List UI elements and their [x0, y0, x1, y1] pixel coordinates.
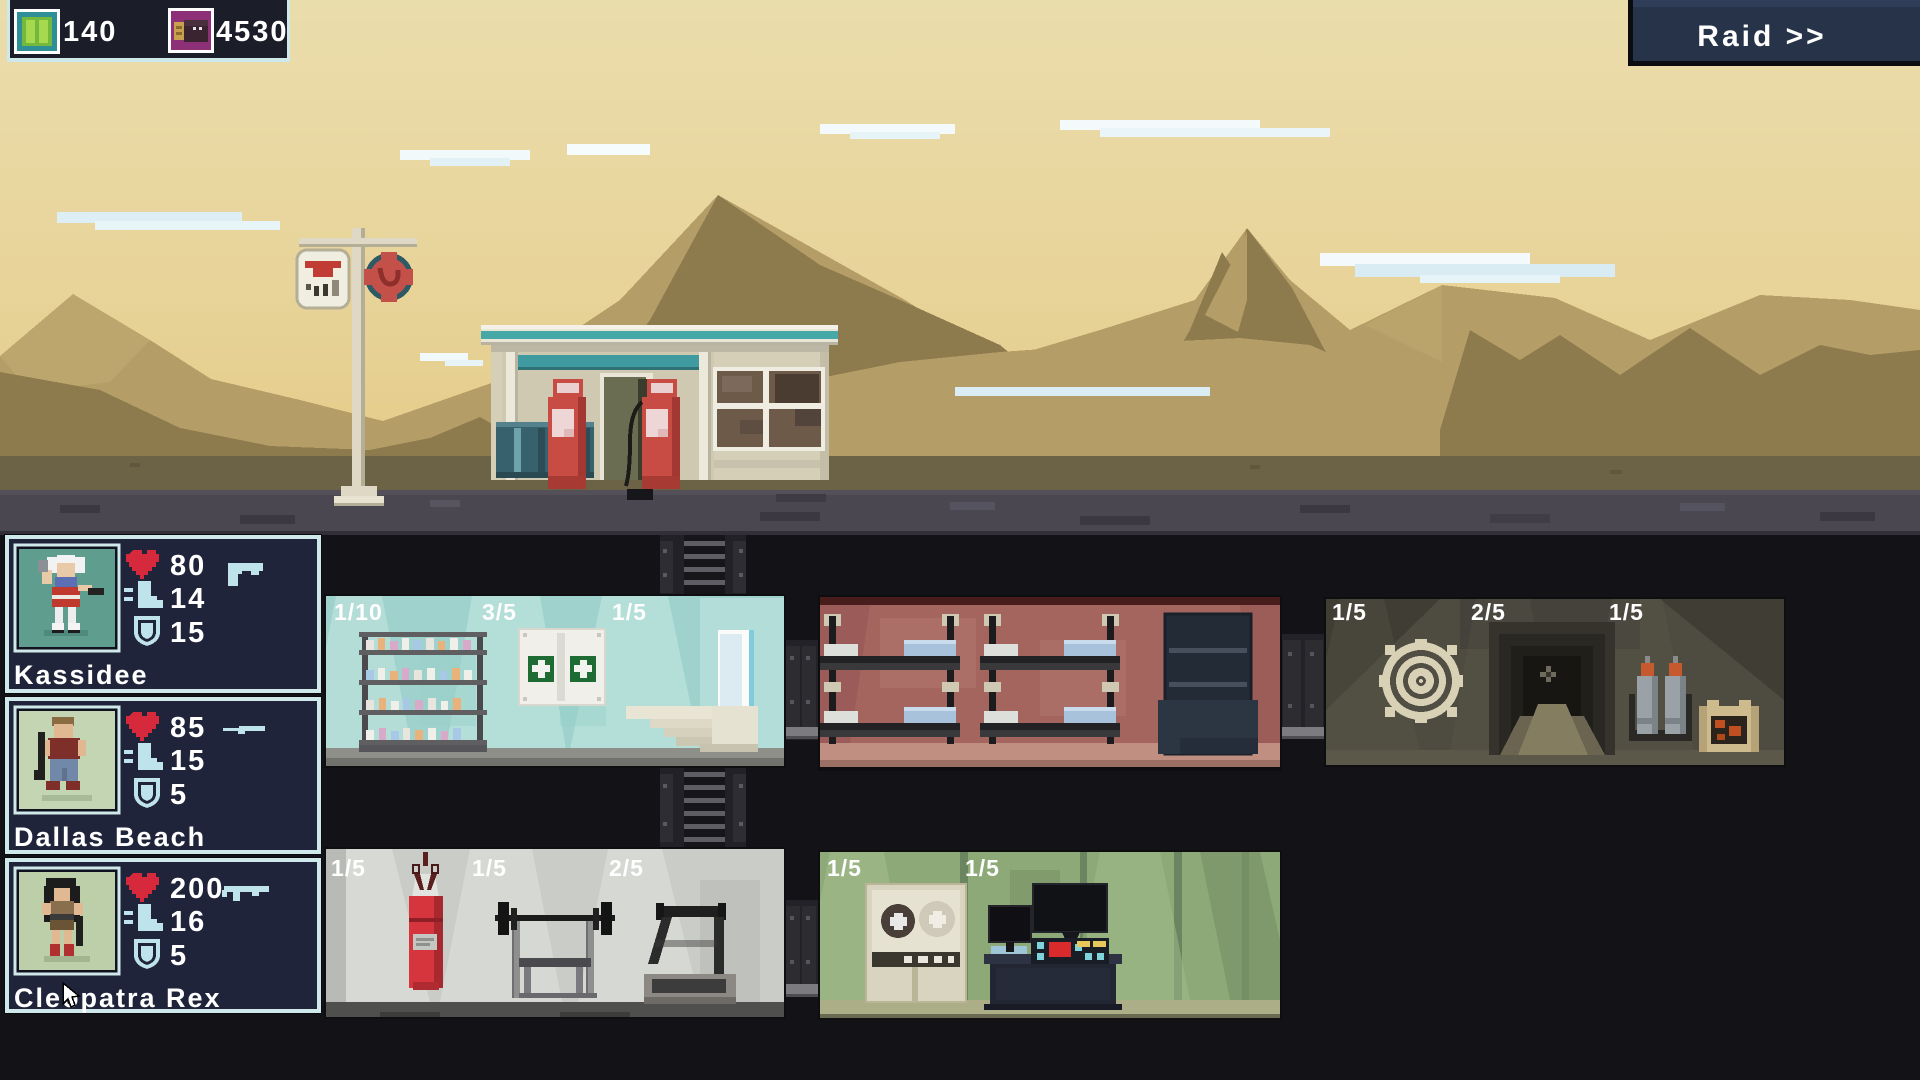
svg-text:1/5: 1/5 [965, 855, 1000, 881]
svg-text:1/5: 1/5 [612, 599, 647, 625]
svg-text:14: 14 [170, 583, 206, 615]
svg-text:Dallas Beach: Dallas Beach [14, 822, 206, 852]
svg-text:200: 200 [170, 873, 224, 905]
svg-text:80: 80 [170, 550, 206, 582]
svg-text:15: 15 [170, 617, 206, 649]
svg-text:3/5: 3/5 [482, 599, 517, 625]
svg-text:Kassidee: Kassidee [14, 660, 149, 690]
svg-text:2/5: 2/5 [1471, 599, 1506, 625]
svg-text:140: 140 [63, 16, 117, 48]
svg-text:1/5: 1/5 [331, 855, 366, 881]
svg-text:Cleopatra Rex: Cleopatra Rex [14, 983, 222, 1013]
svg-text:1/5: 1/5 [1332, 599, 1367, 625]
svg-text:1/5: 1/5 [827, 855, 862, 881]
svg-text:85: 85 [170, 712, 206, 744]
svg-text:5: 5 [170, 779, 188, 811]
svg-text:1/10: 1/10 [334, 599, 383, 625]
svg-text:15: 15 [170, 745, 206, 777]
svg-text:Raid >>: Raid >> [1697, 20, 1826, 53]
svg-text:4530: 4530 [216, 16, 289, 48]
svg-text:1/5: 1/5 [1609, 599, 1644, 625]
svg-text:1/5: 1/5 [472, 855, 507, 881]
svg-text:2/5: 2/5 [609, 855, 644, 881]
svg-text:16: 16 [170, 906, 206, 938]
svg-text:5: 5 [170, 940, 188, 972]
